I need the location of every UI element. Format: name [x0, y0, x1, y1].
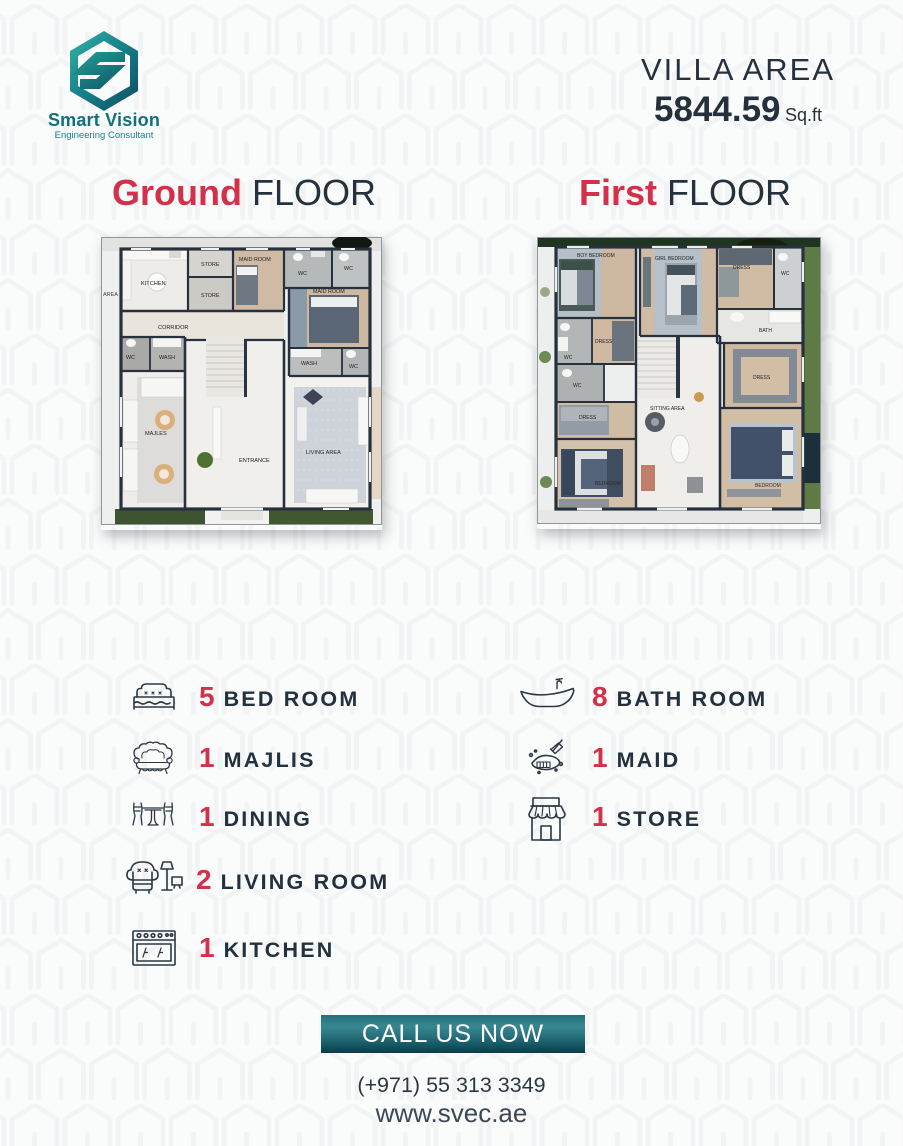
svg-text:DRESS: DRESS — [595, 339, 613, 345]
svg-text:BOY BEDROOM: BOY BEDROOM — [577, 253, 615, 259]
svg-text:Engineering Consultant: Engineering Consultant — [55, 130, 154, 141]
svg-text:WC: WC — [349, 364, 358, 370]
svg-text:STORE: STORE — [201, 262, 220, 268]
svg-text:DRESS: DRESS — [579, 415, 597, 421]
svg-text:WC: WC — [298, 271, 307, 277]
svg-text:MAID ROOM: MAID ROOM — [239, 257, 271, 263]
svg-text:DRESS: DRESS — [753, 375, 771, 381]
svg-text:ENTRANCE: ENTRANCE — [239, 458, 270, 464]
svg-text:KITCHEN: KITCHEN — [141, 281, 166, 287]
svg-text:WASH: WASH — [301, 361, 317, 367]
svg-text:MAJLES: MAJLES — [145, 431, 167, 437]
svg-text:WC: WC — [126, 355, 135, 361]
svg-text:STORE: STORE — [201, 293, 220, 299]
svg-text:GIRL BEDROOM: GIRL BEDROOM — [655, 256, 694, 262]
svg-text:DRESS: DRESS — [733, 265, 751, 271]
svg-text:BEDROOM: BEDROOM — [595, 481, 621, 487]
svg-text:CORRIDOR: CORRIDOR — [158, 325, 188, 331]
svg-text:SITTING AREA: SITTING AREA — [650, 406, 685, 412]
svg-text:WASH: WASH — [159, 355, 175, 361]
svg-text:AREA: AREA — [103, 292, 118, 298]
svg-text:WC: WC — [344, 266, 353, 272]
svg-text:WC: WC — [573, 383, 582, 389]
svg-text:WC: WC — [781, 271, 790, 277]
svg-text:Smart Vision: Smart Vision — [48, 110, 160, 130]
svg-text:BATH: BATH — [759, 328, 772, 334]
svg-text:BEDROOM: BEDROOM — [755, 483, 781, 489]
svg-text:LIVING AREA: LIVING AREA — [306, 450, 341, 456]
svg-text:MAID ROOM: MAID ROOM — [313, 289, 345, 295]
svg-text:WC: WC — [564, 355, 573, 361]
